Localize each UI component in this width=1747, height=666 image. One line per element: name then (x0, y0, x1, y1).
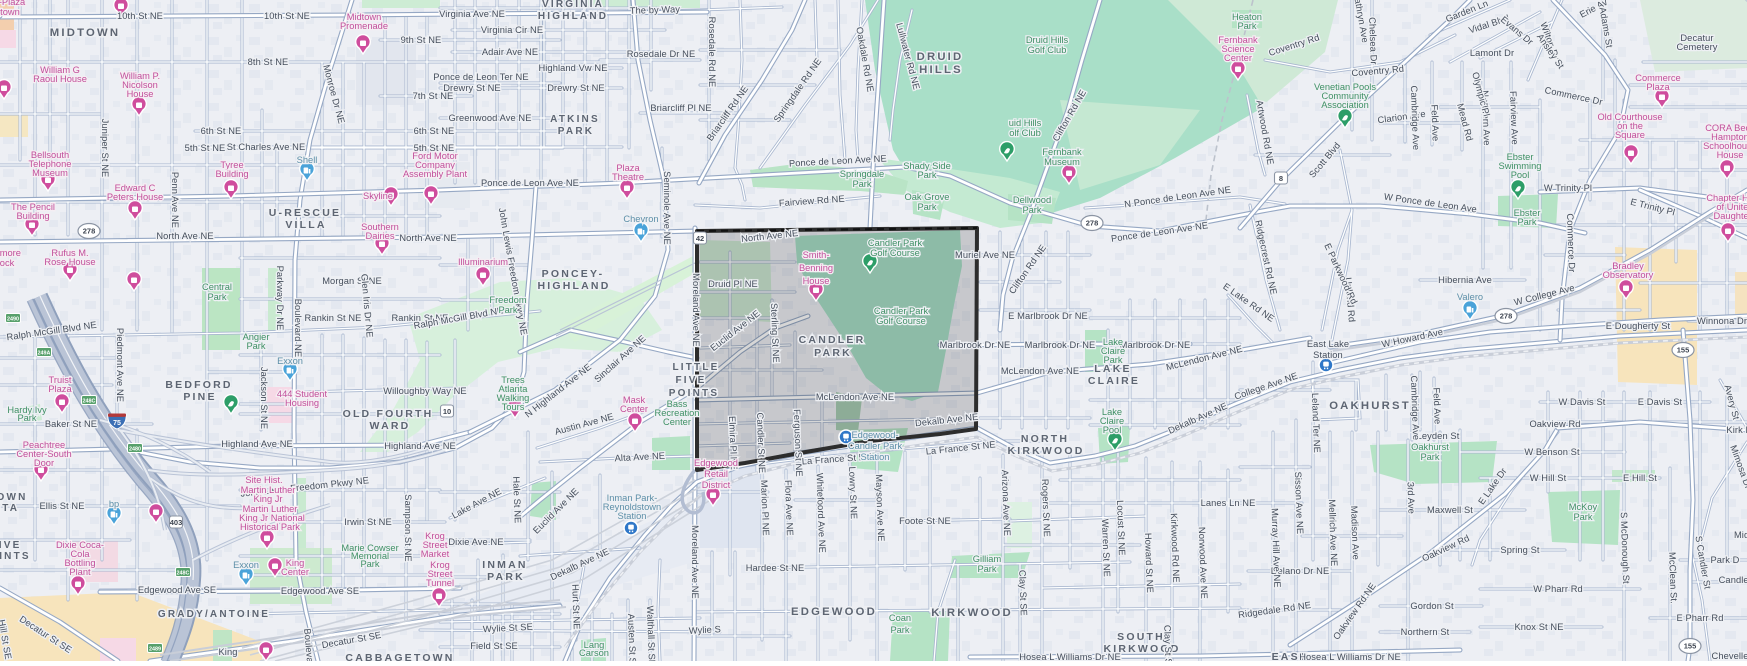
svg-text:EDGEWOOD: EDGEWOOD (791, 606, 877, 618)
svg-text:Chevron: Chevron (623, 214, 658, 224)
svg-text:bp: bp (109, 499, 119, 509)
svg-text:KIRKWOOD: KIRKWOOD (1007, 445, 1084, 457)
svg-text:2480: 2480 (129, 446, 141, 452)
svg-text:Edgewood: Edgewood (694, 458, 738, 468)
svg-text:Edgewood Ave SE: Edgewood Ave SE (281, 586, 359, 596)
svg-text:Tunnel: Tunnel (426, 578, 454, 588)
svg-text:Center: Center (1224, 53, 1252, 63)
svg-text:Park: Park (1420, 452, 1439, 462)
svg-text:TOWN: TOWN (0, 492, 28, 503)
svg-text:PARK: PARK (814, 347, 852, 359)
svg-text:Flora Ave NE: Flora Ave NE (783, 480, 795, 536)
svg-text:Chelsea Dr: Chelsea Dr (1367, 17, 1379, 65)
svg-text:Skyline: Skyline (363, 191, 393, 201)
svg-text:Wylie S: Wylie S (689, 624, 722, 636)
svg-text:Exxon: Exxon (277, 356, 303, 366)
svg-text:Hosea L Williams Dr NE: Hosea L Williams Dr NE (1019, 652, 1121, 661)
svg-text:Walthall St SE: Walthall St SE (645, 605, 657, 661)
svg-text:403: 403 (170, 518, 183, 527)
svg-text:Ponce de Leon Ter NE: Ponce de Leon Ter NE (433, 72, 528, 82)
svg-text:McLendon Ave NE: McLendon Ave NE (816, 392, 894, 402)
svg-text:Marion Pl NE: Marion Pl NE (759, 480, 771, 536)
svg-text:North Ave NE: North Ave NE (156, 231, 213, 241)
svg-text:Boulevard NE: Boulevard NE (293, 299, 303, 358)
svg-text:Highland Ave NE: Highland Ave NE (384, 441, 456, 451)
svg-text:3rd Ave: 3rd Ave (1405, 482, 1416, 514)
svg-text:Parkway Dr NE: Parkway Dr NE (275, 266, 285, 331)
svg-text:Piedmont Ave NE: Piedmont Ave NE (115, 328, 125, 402)
svg-text:E Pharr Rd: E Pharr Rd (1677, 613, 1724, 623)
svg-text:E Marlbrook Dr NE: E Marlbrook Dr NE (1008, 311, 1088, 321)
svg-text:155: 155 (1684, 642, 1697, 651)
svg-text:Park: Park (17, 413, 36, 423)
svg-text:ATKINS: ATKINS (550, 114, 600, 125)
svg-text:Square: Square (1615, 130, 1645, 140)
svg-text:BEDFORD: BEDFORD (165, 379, 232, 391)
svg-text:Irwin St NE: Irwin St NE (344, 517, 392, 527)
svg-text:Sampson St NE: Sampson St NE (403, 494, 413, 561)
svg-text:NTA: NTA (0, 503, 19, 514)
svg-text:Marlbrook Dr NE: Marlbrook Dr NE (1120, 340, 1191, 350)
svg-text:155: 155 (1677, 346, 1690, 355)
svg-text:Hibernia Ave: Hibernia Ave (1438, 275, 1492, 285)
svg-text:75: 75 (113, 420, 121, 427)
svg-text:Station: Station (1313, 350, 1343, 360)
svg-text:Springdale: Springdale (840, 169, 884, 179)
svg-text:Candler Park: Candler Park (848, 441, 903, 451)
svg-text:W Trinity Pl: W Trinity Pl (1544, 183, 1592, 193)
svg-text:Park: Park (977, 564, 996, 574)
svg-text:Candler D: Candler D (1719, 575, 1747, 585)
svg-text:Marlbrook Dr NE: Marlbrook Dr NE (940, 340, 1011, 350)
svg-text:Illuminarium: Illuminarium (458, 257, 508, 267)
svg-text:Northern St: Northern St (1401, 627, 1450, 637)
svg-text:Rose House: Rose House (44, 257, 95, 267)
svg-text:Park: Park (917, 202, 936, 212)
svg-text:Marlbrook Dr NE: Marlbrook Dr NE (1025, 340, 1096, 350)
svg-text:HIGHLAND: HIGHLAND (537, 280, 610, 292)
svg-text:Site Hist.: Site Hist. (245, 475, 282, 485)
svg-text:Historical Park: Historical Park (240, 522, 300, 532)
svg-text:Park: Park (917, 170, 936, 180)
svg-text:Carson: Carson (579, 648, 609, 658)
svg-text:249A: 249A (38, 350, 51, 356)
svg-text:Raoul House: Raoul House (33, 74, 87, 84)
svg-text:Highland Ave NE: Highland Ave NE (221, 439, 293, 449)
svg-text:Building: Building (16, 211, 49, 221)
svg-text:King Jr: King Jr (254, 494, 283, 504)
svg-text:Dairies: Dairies (366, 231, 395, 241)
svg-text:SOUTH: SOUTH (1117, 631, 1165, 643)
svg-text:PARK: PARK (558, 126, 594, 137)
svg-text:Park: Park (1022, 205, 1041, 215)
svg-text:POINTS: POINTS (669, 388, 719, 399)
svg-text:NORTH: NORTH (1021, 433, 1069, 445)
svg-text:10: 10 (443, 407, 451, 416)
svg-text:Golf Course: Golf Course (876, 316, 926, 326)
svg-text:House: House (803, 276, 830, 286)
svg-text:Door: Door (34, 458, 54, 468)
svg-text:McKoy: McKoy (1569, 502, 1598, 512)
svg-text:Sterling St NE: Sterling St NE (769, 303, 781, 363)
svg-text:Edgewood-: Edgewood- (851, 430, 898, 440)
svg-text:PINE: PINE (183, 391, 216, 403)
svg-text:Fairview Ave: Fairview Ave (1508, 91, 1520, 145)
svg-text:Center: Center (281, 567, 309, 577)
svg-text:6th St NE: 6th St NE (414, 126, 455, 136)
svg-text:Park: Park (890, 625, 909, 635)
svg-text:Central: Central (202, 282, 232, 292)
svg-text:Hosea L Williams Dr NE: Hosea L Williams Dr NE (1299, 652, 1401, 661)
svg-text:Station: Station (861, 452, 890, 462)
svg-text:Freedom: Freedom (489, 295, 526, 305)
svg-text:Seminole Ave NE: Seminole Ave NE (662, 171, 672, 245)
svg-text:E Davis St: E Davis St (1638, 397, 1683, 407)
svg-text:278: 278 (1086, 219, 1099, 228)
svg-text:Ponce de Leon Ave NE: Ponce de Leon Ave NE (481, 178, 579, 188)
svg-text:DRUID: DRUID (917, 51, 964, 63)
svg-text:Park: Park (1517, 217, 1536, 227)
svg-text:2489: 2489 (149, 646, 161, 652)
svg-text:Gilliam: Gilliam (973, 554, 1002, 564)
svg-text:Promenade: Promenade (340, 21, 388, 31)
svg-text:East Lake: East Lake (1307, 339, 1349, 349)
svg-text:MIDTOWN: MIDTOWN (50, 27, 120, 39)
svg-text:Theatre: Theatre (612, 172, 644, 182)
svg-text:W Hill St: W Hill St (1530, 473, 1567, 483)
svg-text:Museum: Museum (1044, 157, 1080, 167)
svg-text:Maxwell St: Maxwell St (1427, 505, 1473, 515)
svg-text:House: House (1717, 150, 1744, 160)
svg-text:Association: Association (1321, 100, 1369, 110)
svg-text:Dellwood: Dellwood (1013, 195, 1051, 205)
svg-text:McClean St.: McClean St. (1667, 552, 1679, 604)
svg-text:Park D: Park D (1710, 555, 1739, 565)
svg-text:248C: 248C (83, 398, 96, 404)
svg-text:Golf Club: Golf Club (1028, 45, 1067, 55)
svg-text:Tours: Tours (502, 402, 525, 412)
svg-text:Coan: Coan (889, 613, 911, 623)
svg-text:Rankin St NE: Rankin St NE (304, 313, 361, 323)
svg-text:FIVE: FIVE (675, 375, 706, 386)
svg-text:Museum: Museum (32, 168, 68, 178)
svg-text:Center: Center (620, 404, 648, 414)
svg-text:HIGHLAND: HIGHLAND (538, 11, 608, 22)
svg-text:Moreland Ave NE: Moreland Ave NE (690, 525, 700, 599)
svg-text:Baker St NE: Baker St NE (45, 419, 97, 429)
svg-text:Clay St SE: Clay St SE (1017, 570, 1029, 616)
svg-text:Moreland Ave NE: Moreland Ave NE (691, 273, 701, 347)
svg-text:U-RESCUE: U-RESCUE (269, 207, 341, 219)
svg-text:uid Hills: uid Hills (1009, 118, 1042, 128)
svg-text:CANDLER: CANDLER (799, 334, 866, 346)
svg-text:LITTLE: LITTLE (672, 362, 719, 373)
svg-text:8th St NE: 8th St NE (248, 57, 289, 67)
svg-text:E Hill St: E Hill St (1623, 473, 1657, 483)
svg-text:42: 42 (696, 234, 704, 243)
svg-text:278: 278 (83, 227, 96, 236)
svg-text:2490: 2490 (7, 316, 19, 322)
svg-text:Lowry St NE: Lowry St NE (847, 466, 859, 519)
svg-text:248C: 248C (177, 570, 190, 576)
svg-text:Park: Park (1103, 355, 1122, 365)
svg-text:Warren St NE: Warren St NE (1100, 519, 1112, 578)
svg-text:timore: timore (0, 248, 21, 258)
svg-text:Chevelle: Chevelle (1712, 651, 1747, 661)
svg-text:Rosedale Dr NE: Rosedale Dr NE (627, 49, 696, 59)
svg-text:North Ave NE: North Ave NE (399, 233, 456, 243)
svg-text:Kirk Rd: Kirk Rd (1726, 425, 1747, 435)
svg-text:Morgan St NE: Morgan St NE (322, 276, 382, 286)
svg-text:E Dougherty St: E Dougherty St (1606, 321, 1671, 331)
svg-text:olf Club: olf Club (1009, 128, 1041, 138)
svg-text:8: 8 (1279, 174, 1283, 183)
svg-text:FIVE: FIVE (0, 540, 22, 551)
svg-text:PONCEY-: PONCEY- (542, 268, 605, 280)
svg-text:OINTS: OINTS (0, 551, 31, 562)
svg-text:W Davis St: W Davis St (1559, 397, 1606, 407)
svg-text:W Benson St: W Benson St (1524, 447, 1580, 457)
svg-text:Madison Ave: Madison Ave (1349, 506, 1361, 560)
svg-text:Austen St SE: Austen St SE (626, 613, 638, 661)
svg-text:Field St SE: Field St SE (470, 641, 518, 651)
svg-text:INMAN: INMAN (482, 559, 527, 571)
svg-text:Candler Park: Candler Park (868, 238, 923, 248)
svg-text:5th St NE: 5th St NE (185, 143, 226, 153)
svg-text:Station: Station (618, 511, 647, 521)
svg-text:-Plaza: -Plaza (0, 0, 26, 7)
svg-text:WARD: WARD (370, 420, 411, 432)
svg-text:Virginia Cir NE: Virginia Cir NE (481, 25, 543, 35)
svg-text:Foote St NE: Foote St NE (899, 516, 951, 526)
svg-text:Winnona Dr: Winnona Dr (1697, 316, 1747, 326)
svg-text:Benning: Benning (799, 263, 833, 273)
svg-text:Candler St NE: Candler St NE (755, 412, 767, 473)
svg-text:CLAIRE: CLAIRE (1088, 375, 1140, 387)
svg-text:Housing: Housing (285, 398, 319, 408)
svg-text:Park: Park (852, 179, 871, 189)
svg-text:Hale St NE: Hale St NE (511, 476, 523, 523)
svg-text:Adair Ave NE: Adair Ave NE (482, 47, 538, 57)
svg-text:Oakhurst: Oakhurst (1411, 442, 1449, 452)
svg-text:CABBAGETOWN: CABBAGETOWN (345, 652, 454, 661)
svg-text:Observatory: Observatory (1603, 270, 1654, 280)
svg-text:Oak Grove: Oak Grove (905, 192, 950, 202)
svg-text:Smith-: Smith- (803, 250, 830, 260)
svg-text:Highland Vw NE: Highland Vw NE (538, 63, 607, 73)
svg-text:Willoughby Way NE: Willoughby Way NE (383, 386, 467, 396)
svg-text:Feld Ave: Feld Ave (1429, 104, 1440, 141)
svg-text:Greenwood Ave NE: Greenwood Ave NE (448, 113, 531, 123)
svg-text:PARK: PARK (487, 571, 525, 583)
svg-text:Ellis St NE: Ellis St NE (39, 501, 84, 511)
svg-text:6th St NE: 6th St NE (201, 126, 242, 136)
svg-text:Shell: Shell (297, 155, 318, 165)
svg-text:Midw: Midw (1734, 530, 1747, 540)
svg-text:Knox St NE: Knox St NE (1514, 622, 1563, 632)
svg-text:Center: Center (663, 417, 691, 427)
svg-text:Candler Park: Candler Park (874, 306, 929, 316)
svg-text:King: King (218, 647, 237, 657)
svg-text:Clay St SE: Clay St SE (1162, 625, 1174, 661)
svg-text:town: town (0, 7, 20, 17)
svg-text:Lanes Ln NE: Lanes Ln NE (1201, 498, 1256, 508)
svg-text:Edgewood Ave SE: Edgewood Ave SE (138, 585, 216, 595)
svg-text:Penn Ave NE: Penn Ave NE (170, 172, 180, 228)
svg-text:Retail: Retail (704, 469, 728, 479)
svg-text:Park: Park (360, 559, 379, 569)
svg-text:Hurt St NE: Hurt St NE (570, 584, 582, 630)
svg-text:Druid Pl NE: Druid Pl NE (708, 279, 758, 289)
svg-text:St Charles Ave NE: St Charles Ave NE (227, 142, 306, 152)
svg-text:OLD FOURTH: OLD FOURTH (343, 408, 434, 420)
svg-text:House: House (127, 89, 154, 99)
svg-text:Park: Park (1573, 512, 1592, 522)
svg-text:Pool: Pool (1511, 170, 1530, 180)
svg-text:Park: Park (1237, 21, 1256, 31)
svg-text:Commerce Dr: Commerce Dr (1565, 213, 1577, 272)
svg-text:HILLS: HILLS (919, 64, 963, 76)
svg-text:Leyden St: Leyden St (1417, 431, 1460, 441)
svg-text:Drewry St NE: Drewry St NE (443, 83, 501, 93)
svg-text:McLendon Ave NE: McLendon Ave NE (1001, 366, 1079, 376)
svg-text:Spring St: Spring St (1500, 545, 1539, 555)
svg-text:Druid Hills: Druid Hills (1026, 35, 1069, 45)
svg-text:Locust St NE: Locust St NE (1115, 500, 1127, 556)
svg-text:Exxon: Exxon (233, 560, 259, 570)
svg-text:Park: Park (246, 341, 265, 351)
svg-text:10th St NE: 10th St NE (264, 11, 310, 21)
svg-text:278: 278 (1500, 312, 1513, 321)
svg-text:VILLA: VILLA (285, 219, 326, 231)
svg-text:W Pharr Rd: W Pharr Rd (1533, 584, 1583, 594)
svg-text:Dixie Ave NE: Dixie Ave NE (448, 537, 503, 547)
svg-text:Park: Park (498, 305, 517, 315)
svg-text:Hardee St NE: Hardee St NE (746, 563, 805, 573)
svg-text:Plaza: Plaza (1646, 82, 1670, 92)
svg-text:Virginia Ave NE: Virginia Ave NE (439, 9, 505, 19)
svg-text:Park: Park (207, 292, 226, 302)
svg-text:Fernbank: Fernbank (1042, 147, 1082, 157)
svg-text:Pool: Pool (1103, 425, 1122, 435)
svg-text:lock: lock (0, 258, 15, 268)
svg-text:Drewry St NE: Drewry St NE (547, 83, 605, 93)
svg-text:Briarcliff Pl NE: Briarcliff Pl NE (650, 103, 711, 113)
svg-text:10th St NE: 10th St NE (117, 11, 163, 21)
svg-text:Oakview Rd: Oakview Rd (1529, 419, 1580, 429)
svg-text:GRADY/ANTOINE: GRADY/ANTOINE (158, 609, 270, 620)
svg-text:Golf Course: Golf Course (870, 248, 920, 258)
svg-text:Rogers St NE: Rogers St NE (1040, 479, 1052, 537)
svg-text:Jackson St NE: Jackson St NE (259, 367, 269, 429)
svg-text:Howard St NE: Howard St NE (1143, 533, 1155, 593)
svg-text:VIRGINIA: VIRGINIA (542, 0, 604, 10)
svg-text:Juniper St NE: Juniper St NE (100, 119, 110, 178)
svg-text:Valero: Valero (1457, 292, 1483, 302)
svg-text:Muriel Ave NE: Muriel Ave NE (955, 250, 1015, 260)
svg-text:Gordon St: Gordon St (1410, 601, 1454, 611)
svg-text:OAKHURST: OAKHURST (1329, 400, 1411, 412)
svg-text:Plant: Plant (69, 567, 91, 577)
svg-text:Cemetery: Cemetery (1676, 42, 1717, 52)
svg-text:District: District (702, 480, 731, 490)
svg-text:Daughters: Daughters (1714, 211, 1747, 221)
svg-text:9th St NE: 9th St NE (401, 35, 442, 45)
svg-text:Lamont Dr: Lamont Dr (1470, 48, 1514, 58)
svg-text:Market: Market (421, 549, 450, 559)
svg-text:Feld Ave: Feld Ave (1431, 387, 1442, 424)
svg-text:Rosedale Rd NE: Rosedale Rd NE (707, 17, 717, 88)
svg-text:Peters House: Peters House (107, 192, 163, 202)
svg-text:Building: Building (215, 169, 248, 179)
svg-text:Plaza: Plaza (48, 384, 72, 394)
svg-text:KIRKWOOD: KIRKWOOD (931, 607, 1013, 619)
svg-text:Leland Ter NE: Leland Ter NE (1310, 393, 1322, 453)
svg-text:Assembly Plant: Assembly Plant (403, 169, 467, 179)
svg-text:The by Way: The by Way (630, 4, 681, 16)
